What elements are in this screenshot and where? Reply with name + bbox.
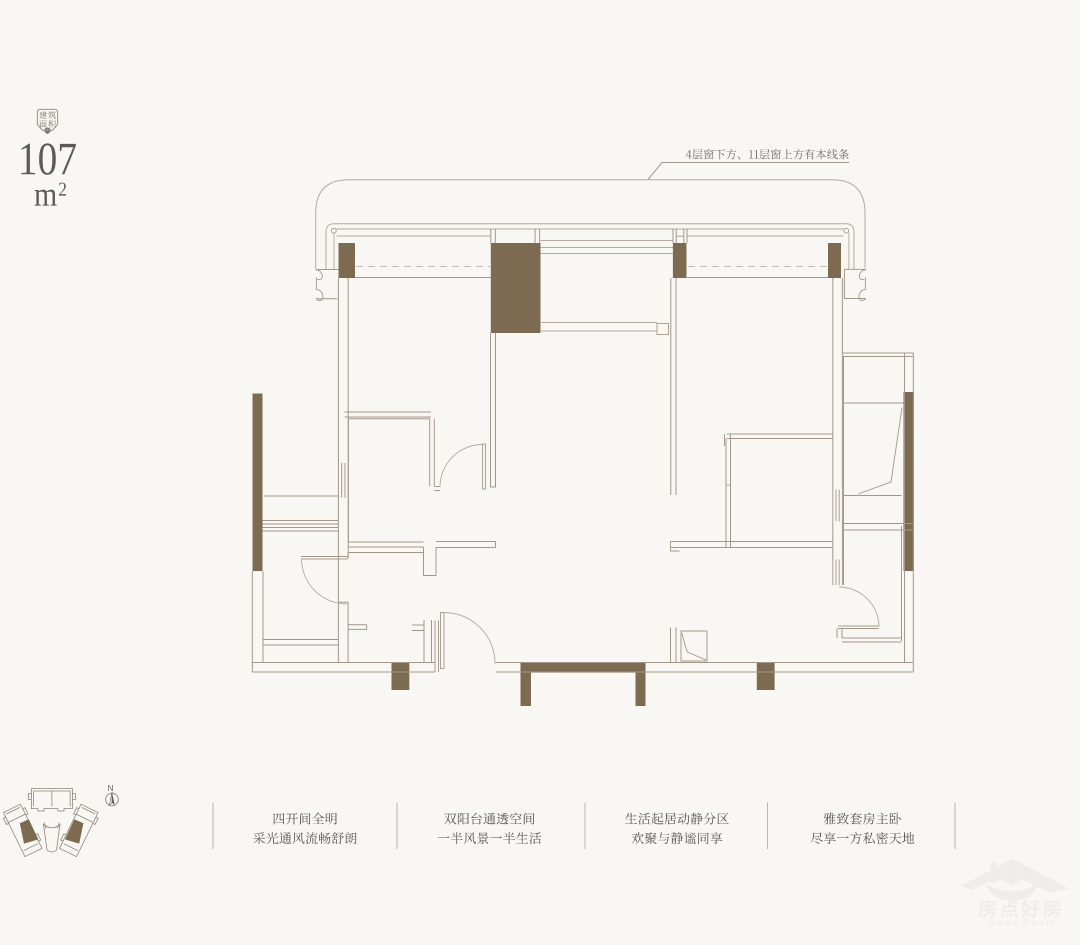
svg-text:N: N [108, 783, 114, 793]
svg-text:Good Room: Good Room [988, 918, 1056, 929]
